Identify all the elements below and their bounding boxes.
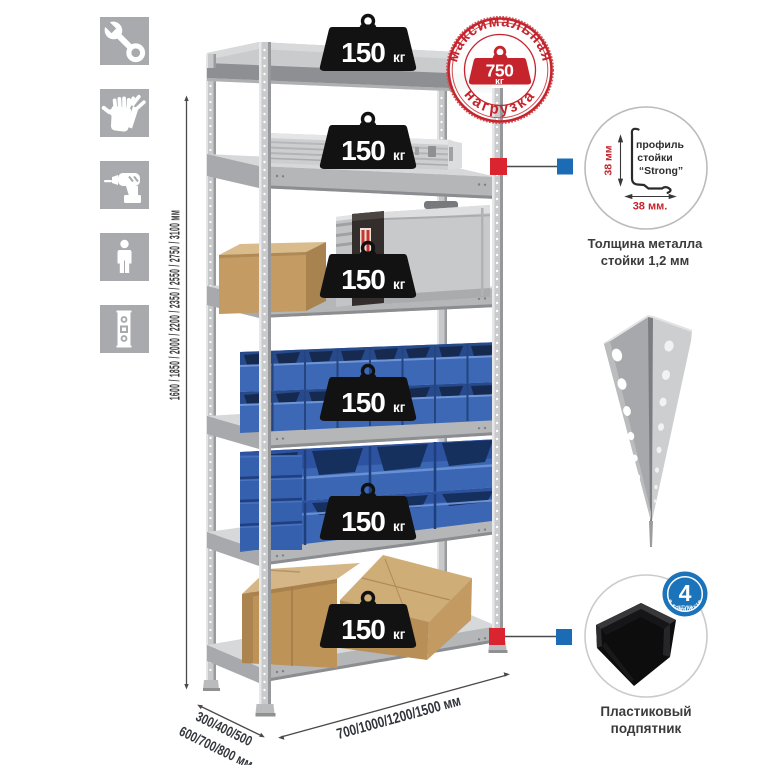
svg-text:“Strong”: “Strong” [639, 165, 683, 177]
svg-text:профиль: профиль [636, 139, 684, 151]
svg-text:38 мм.: 38 мм. [633, 201, 668, 213]
svg-text:подпятник: подпятник [611, 721, 682, 736]
svg-text:38 мм: 38 мм [603, 145, 615, 175]
svg-text:Толщина металла: Толщина металла [588, 236, 703, 251]
svg-text:стойки 1,2 мм: стойки 1,2 мм [601, 253, 689, 268]
svg-text:1600 / 1850 / 2000 / 2200 / 23: 1600 / 1850 / 2000 / 2200 / 2350 / 2550 … [167, 210, 184, 400]
svg-text:стойки: стойки [637, 152, 672, 164]
svg-text:кг: кг [495, 76, 504, 87]
svg-text:4: 4 [679, 580, 692, 606]
svg-text:Пластиковый: Пластиковый [600, 704, 691, 719]
